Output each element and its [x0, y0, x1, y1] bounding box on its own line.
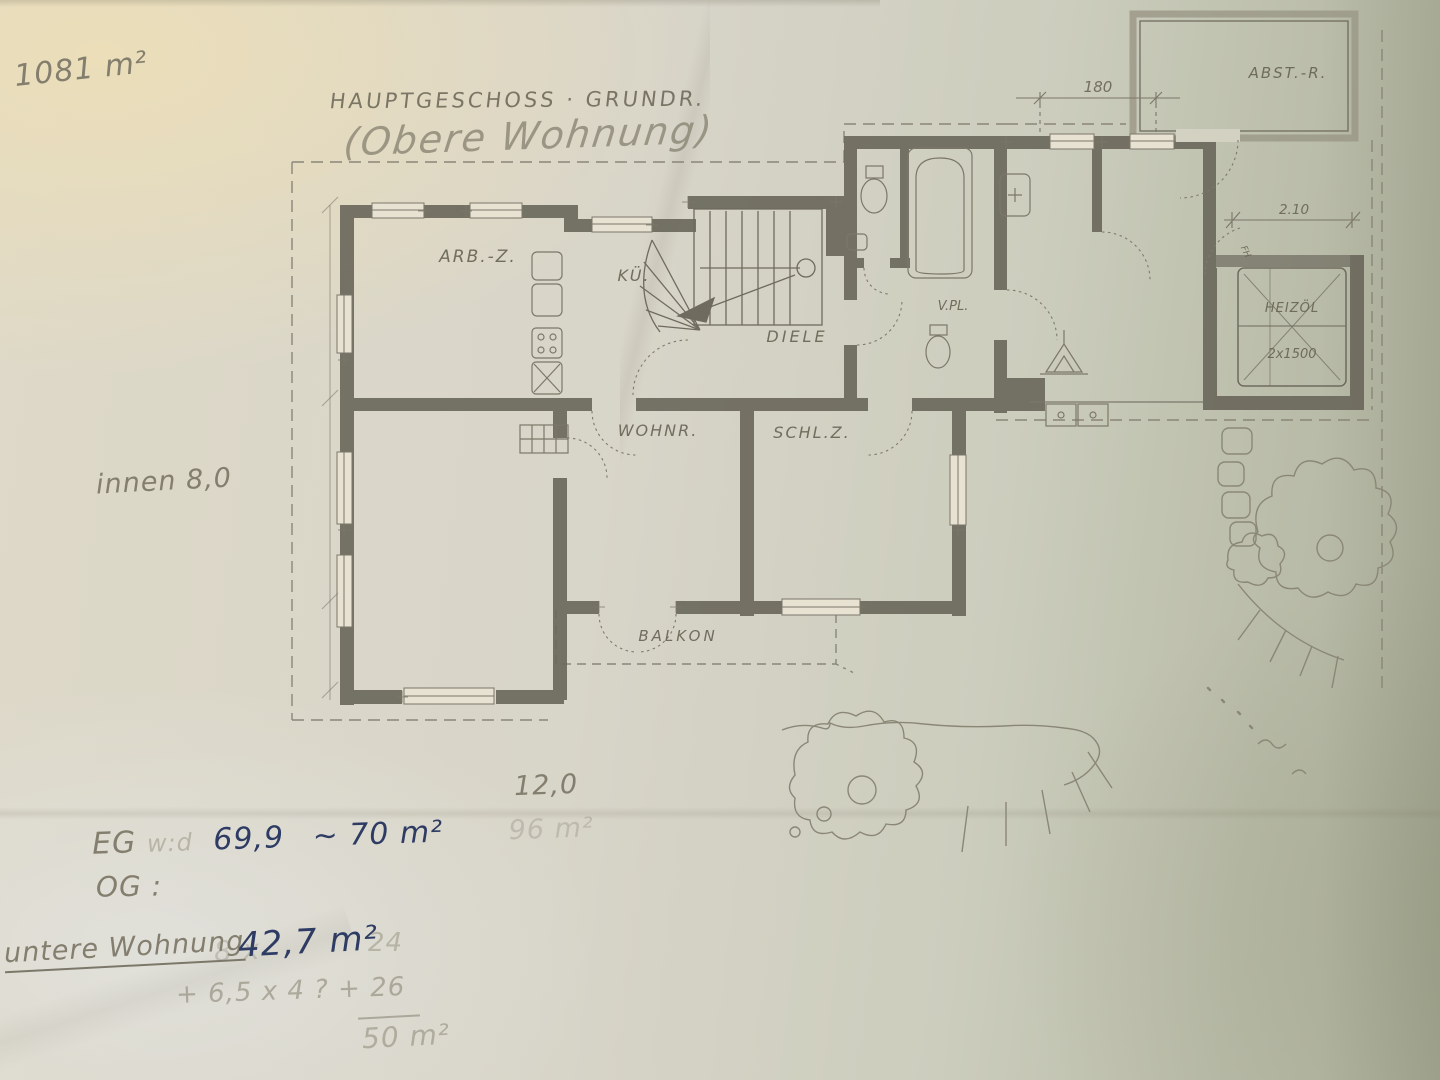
eg-scribble: w:d — [146, 828, 193, 858]
calc-suffix: 24 — [368, 928, 403, 958]
dimension-labels: 180 2.10 FH — [1084, 78, 1309, 260]
garden-sketch — [782, 428, 1397, 852]
floor-plan-drawing: ARB.-Z. KÜ. DIELE WOHNR. SCHL.Z. V.PL. B… — [0, 0, 1440, 1080]
room-label-heizoel: HEIZÖL — [1265, 299, 1319, 316]
tank-size-label: 2x1500 — [1267, 347, 1316, 362]
room-label-arbz: ARB.-Z. — [438, 247, 517, 267]
room-label-schlz: SCHL.Z. — [773, 423, 850, 442]
room-label-kue: KÜ. — [617, 266, 650, 285]
eg-label: EG — [92, 825, 137, 862]
oil-tank — [1238, 268, 1346, 386]
dim-210: 2.10 — [1279, 202, 1309, 218]
wall-tick-marks — [338, 136, 1108, 703]
calc-total: 50 m² — [361, 1018, 451, 1056]
dim-180: 180 — [1084, 78, 1113, 96]
og-line: OG : — [96, 869, 163, 903]
annex-walls — [1133, 14, 1355, 198]
eg-faint-value: 96 m² — [508, 812, 594, 846]
eg-value: 69,9 — [213, 820, 285, 857]
room-label-balkon: BALKON — [638, 627, 717, 645]
utility-fixtures — [1030, 330, 1203, 426]
bottom-width-note: 12,0 — [513, 769, 578, 802]
windows-group — [337, 134, 1174, 704]
room-label-wohnr: WOHNR. — [618, 421, 699, 440]
floor-plan-photo: ARB.-Z. KÜ. DIELE WOHNR. SCHL.Z. V.PL. B… — [0, 0, 1440, 1080]
room-label-vpl: V.PL. — [938, 299, 969, 314]
room-label-abstr: ABST.-R. — [1248, 64, 1328, 82]
room-label-diele: DIELE — [766, 327, 827, 346]
calc-area-value: 42,7 m² — [237, 918, 379, 965]
eg-approx-value: ~ 70 m² — [312, 815, 444, 855]
